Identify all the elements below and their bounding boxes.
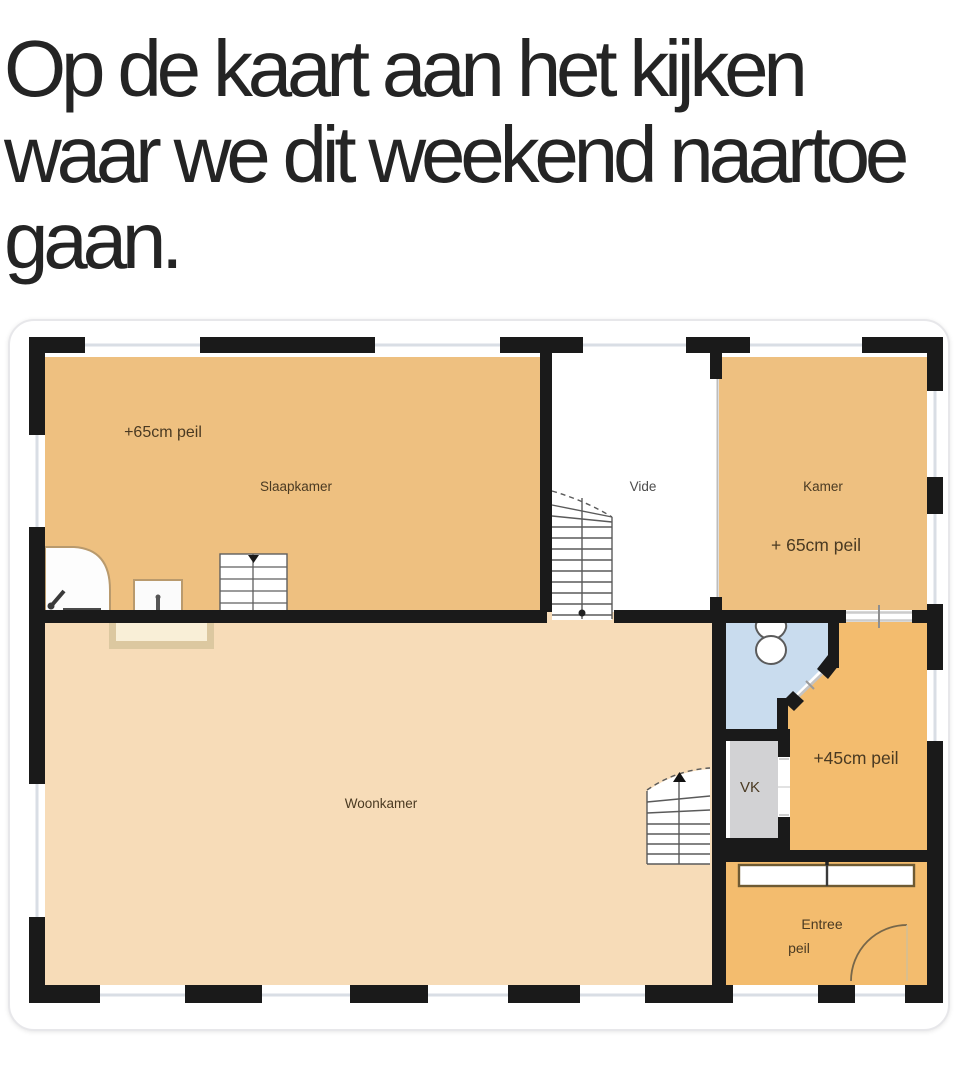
svg-text:+ 65cm peil: + 65cm peil [771, 535, 861, 555]
svg-text:+45cm peil: +45cm peil [813, 748, 898, 768]
svg-text:Slaapkamer: Slaapkamer [260, 479, 333, 494]
svg-text:VK: VK [740, 779, 760, 796]
svg-text:Woonkamer: Woonkamer [345, 796, 418, 811]
svg-text:Kamer: Kamer [803, 479, 843, 494]
svg-text:Vide: Vide [630, 479, 657, 494]
svg-text:peil: peil [788, 940, 810, 956]
svg-text:+65cm peil: +65cm peil [124, 424, 202, 441]
svg-text:Entree: Entree [801, 916, 842, 932]
